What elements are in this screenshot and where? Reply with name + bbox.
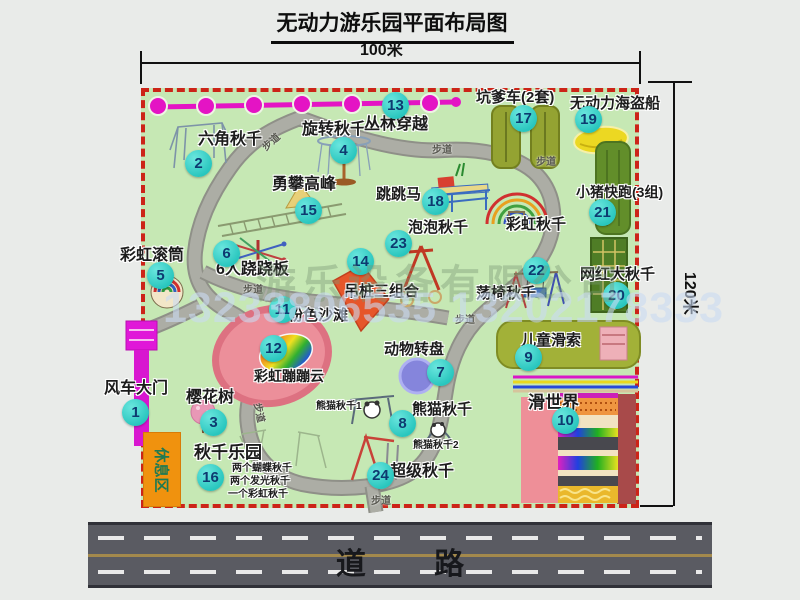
attraction-label: 彩虹滚筒	[120, 248, 184, 264]
attraction-label: 旋转秋千	[302, 122, 366, 138]
attraction-label: 吊桩三组合	[344, 284, 419, 299]
attraction-badge: 20	[603, 282, 630, 309]
attraction-badge: 8	[389, 410, 416, 437]
attraction-label: 网红大秋千	[580, 267, 655, 282]
walkway-label: 步道	[243, 286, 263, 296]
attraction-label: 彩虹蹦蹦云	[254, 369, 324, 383]
attraction-badge: 24	[367, 462, 394, 489]
rainbow-swing-label: 彩虹秋千	[506, 217, 566, 232]
attraction-label: 小猪快跑(3组)	[576, 185, 663, 199]
attraction-badge: 17	[510, 105, 537, 132]
attraction-badge: 22	[523, 257, 550, 284]
attraction-label: 六角秋千	[198, 132, 262, 148]
attraction-label: 风车大门	[104, 381, 168, 397]
attraction-label: 坑爹车(2套)	[476, 90, 554, 105]
attraction-badge: 9	[515, 344, 542, 371]
attraction-badge: 18	[422, 188, 449, 215]
attraction-badge: 15	[295, 197, 322, 224]
attraction-badge: 10	[552, 407, 579, 434]
jungle-crossing-icon	[149, 94, 461, 115]
attraction-badge: 14	[347, 248, 374, 275]
walkway-label: 步道	[371, 497, 391, 507]
attraction-label: 秋千乐园	[194, 444, 262, 461]
attraction-badge: 2	[185, 150, 212, 177]
attraction-label: 樱花树	[186, 390, 234, 406]
attraction-label: 丛林穿越	[364, 117, 428, 133]
attraction-sublabel: 熊猫秋千2	[413, 441, 459, 451]
attraction-note: 两个蝴蝶秋千	[232, 464, 292, 474]
attraction-badge: 23	[385, 230, 412, 257]
attraction-badge: 1	[122, 399, 149, 426]
road: 道 路	[88, 522, 712, 588]
attraction-label: 超级秋千	[390, 464, 454, 480]
walkway-label: 步道	[432, 146, 452, 156]
rest-area: 休息区	[143, 432, 181, 507]
attraction-label: 熊猫秋千	[412, 402, 472, 417]
attraction-label: 跳跳马	[376, 187, 421, 202]
attraction-badge: 12	[260, 335, 287, 362]
walkway-label: 步道	[536, 158, 556, 168]
attraction-badge: 19	[575, 106, 602, 133]
attraction-label: 粉色沙滩	[288, 308, 348, 323]
attraction-badge: 7	[427, 359, 454, 386]
attraction-label: 泡泡秋千	[408, 220, 468, 235]
attraction-badge: 21	[589, 199, 616, 226]
attraction-badge: 11	[269, 296, 296, 323]
park-layout-page: 无动力游乐园平面布局图 100米 120米	[0, 0, 800, 600]
road-label: 道 路	[88, 539, 712, 583]
attraction-badge: 6	[213, 240, 240, 267]
attraction-label: 勇攀高峰	[272, 177, 336, 193]
attraction-badge: 13	[382, 92, 409, 119]
attraction-badge: 16	[197, 464, 224, 491]
attraction-badge: 3	[200, 409, 227, 436]
attraction-label: 荡椅秋千	[476, 286, 536, 301]
attraction-badge: 4	[330, 137, 357, 164]
attraction-badge: 5	[147, 262, 174, 289]
attraction-note: 一个彩虹秋千	[228, 490, 288, 500]
attraction-note: 两个发光秋千	[230, 477, 290, 487]
map-artwork	[0, 0, 800, 600]
walkway-label: 步道	[455, 316, 475, 326]
attraction-sublabel: 熊猫秋千1	[316, 402, 362, 412]
rest-area-label: 休息区	[152, 447, 173, 492]
attraction-label: 动物转盘	[384, 342, 444, 357]
